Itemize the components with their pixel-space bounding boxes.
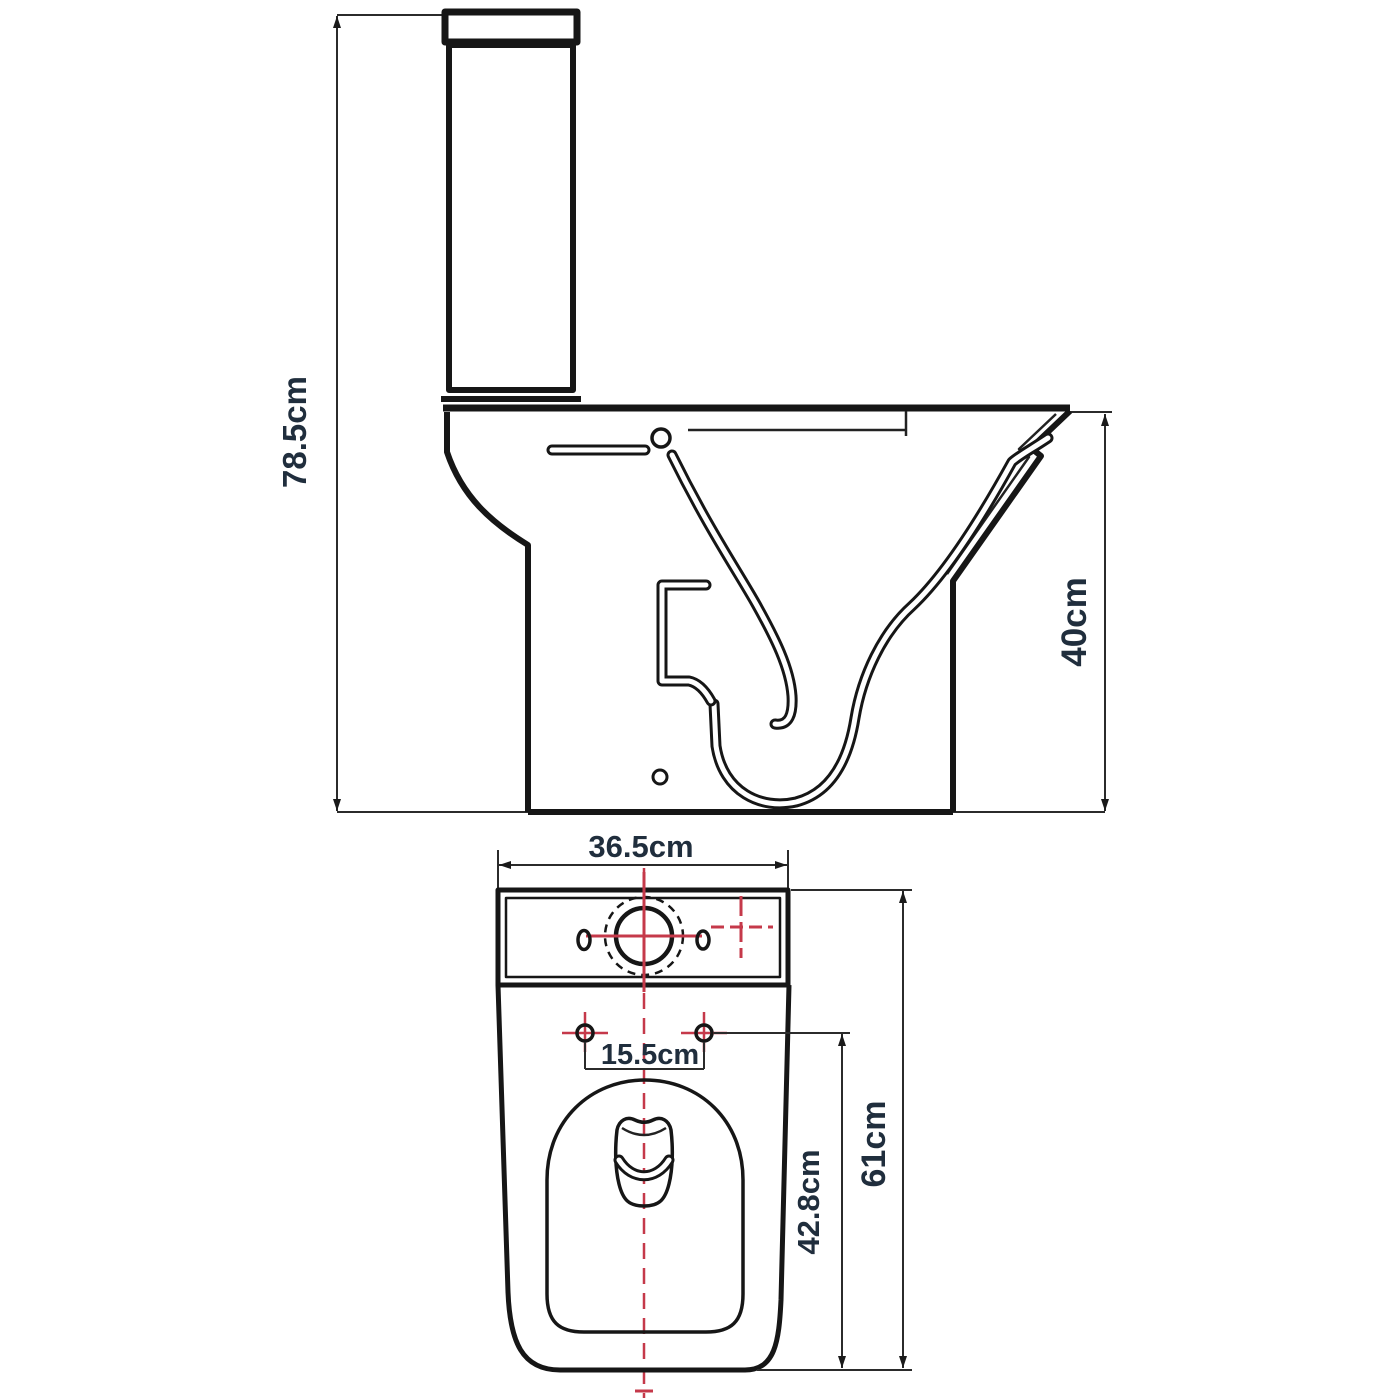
marker-crosshair-right [711, 896, 773, 958]
dimension-label-overall-depth: 61cm [855, 1101, 893, 1188]
plan-top-view: 36.5cm [498, 829, 912, 1398]
side-elevation-view: 78.5cm 40cm [276, 12, 1112, 812]
dimension-label-bowl-height: 40cm [1055, 577, 1094, 667]
bowl-front-outline [447, 412, 528, 812]
dimension-fixing-centres: 15.5cm [585, 1039, 704, 1071]
seat-hinge-hole [652, 429, 670, 447]
page: { "drawing": { "kind": "toilet-technical… [0, 0, 1400, 1400]
dimension-label-cistern-width: 36.5cm [588, 829, 693, 864]
cistern-lid [445, 12, 577, 42]
inlet-channel-box [662, 585, 711, 701]
trap-funnel-outline [552, 438, 1048, 804]
pedestal-fixing-hole-side [653, 770, 667, 784]
cistern-hole-right [697, 931, 709, 949]
dimension-label-pan-depth: 42.8cm [791, 1149, 826, 1254]
cistern-hole-left [578, 931, 590, 950]
dimension-bowl-height: 40cm [1055, 414, 1105, 811]
technical-drawing-canvas: 78.5cm 40cm [0, 0, 1400, 1400]
dimension-label-overall-height: 78.5cm [276, 376, 313, 488]
cistern-body [449, 45, 573, 390]
dimension-overall-height: 78.5cm [276, 16, 337, 811]
dimension-label-fixing-centres: 15.5cm [601, 1039, 699, 1071]
